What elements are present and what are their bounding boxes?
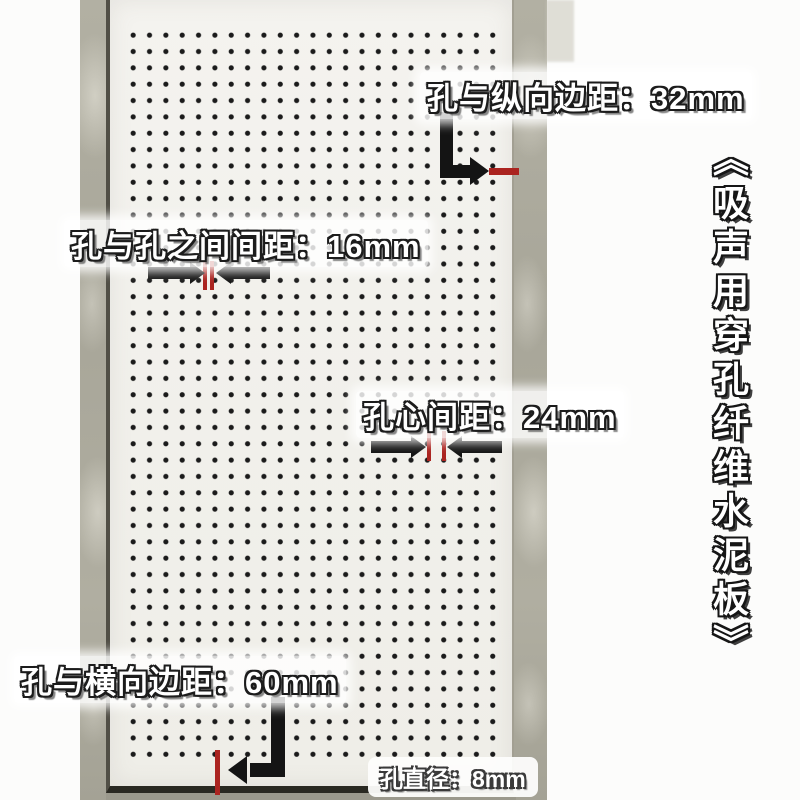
horizontal-edge-arrow-shaft-down [271,697,285,765]
hole-gap-left-shaft [148,267,191,279]
hole-center-spacing-label: 孔心间距：24mm [356,391,624,438]
hole-diameter-badge: 孔直径：8mm [368,757,538,797]
hole-center-right-arrowhead-icon [447,436,462,458]
horizontal-edge-arrowhead-icon [228,756,247,784]
hole-gap-right-shaft [230,267,270,279]
horizontal-edge-distance-label: 孔与横向边距：60mm [14,656,346,703]
vertical-edge-red-measure-line [489,168,519,175]
hole-gap-label: 孔与孔之间间距：16mm [64,220,428,267]
hole-center-left-arrowhead-icon [411,436,426,458]
horizontal-edge-red-measure-line [215,750,220,795]
horizontal-edge-arrow-shaft-left [250,763,285,777]
vertical-edge-distance-label: 孔与纵向边距：32mm [420,72,752,119]
hole-center-right-shaft [461,441,502,453]
product-title-vertical: 《吸声用穿孔纤维水泥板》 [702,140,754,700]
vertical-edge-arrow-shaft-right [440,165,471,178]
floor-tile-patch-top-right [546,0,574,62]
annotated-product-photo: { "product_title": "《吸声用穿孔纤维水泥板》", "anno… [0,0,800,800]
vertical-edge-arrowhead-icon [470,157,489,185]
hole-center-left-shaft [371,441,412,453]
